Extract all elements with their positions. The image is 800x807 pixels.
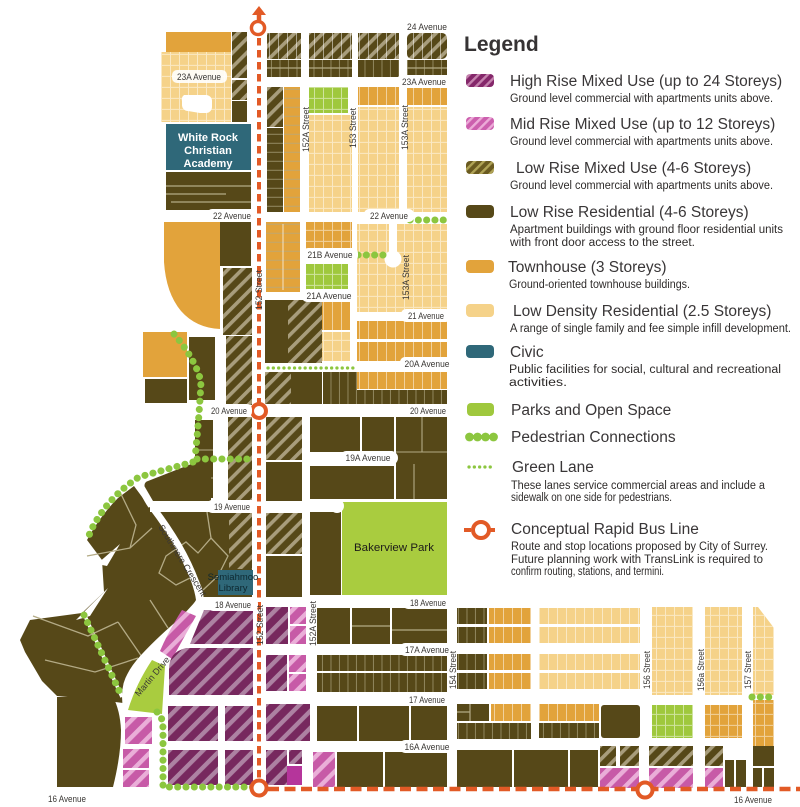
svg-text:152A Street: 152A Street: [308, 601, 318, 646]
svg-text:154 Street: 154 Street: [448, 651, 458, 689]
svg-text:22 Avenue: 22 Avenue: [213, 211, 251, 221]
svg-text:High Rise Mixed Use (up to 24: High Rise Mixed Use (up to 24 Storeys): [510, 73, 782, 90]
svg-text:Ground level commercial with a: Ground level commercial with apartments …: [510, 136, 773, 148]
svg-text:Public facilities for social,: Public facilities for social, cultural a…: [509, 364, 781, 376]
svg-text:153 Street: 153 Street: [348, 108, 358, 148]
svg-text:White Rock: White Rock: [178, 132, 239, 144]
svg-text:156a Street: 156a Street: [696, 649, 706, 691]
svg-text:19 Avenue: 19 Avenue: [214, 502, 250, 512]
svg-text:A range of single family and f: A range of single family and fee simple …: [510, 323, 791, 335]
svg-text:24 Avenue: 24 Avenue: [407, 22, 447, 32]
svg-text:Low Rise Mixed Use (4-6 Storey: Low Rise Mixed Use (4-6 Storeys): [516, 160, 751, 177]
svg-text:Civic: Civic: [510, 344, 544, 361]
svg-text:Christian: Christian: [184, 145, 232, 157]
svg-text:153A Street: 153A Street: [401, 255, 411, 300]
svg-text:152A Street: 152A Street: [301, 107, 311, 152]
svg-text:Ground-oriented townhouse buil: Ground-oriented townhouse buildings.: [509, 279, 690, 291]
svg-text:23A Avenue: 23A Avenue: [177, 72, 221, 82]
svg-text:sidewalk on one side for pedes: sidewalk on one side for pedestrians.: [511, 492, 672, 504]
svg-text:Parks and Open Space: Parks and Open Space: [511, 402, 671, 419]
svg-text:17 Avenue: 17 Avenue: [409, 695, 445, 705]
svg-text:16 Avenue: 16 Avenue: [48, 794, 86, 804]
svg-text:21A Avenue: 21A Avenue: [307, 291, 352, 301]
svg-text:Route and stop locations propo: Route and stop locations proposed by Cit…: [511, 541, 768, 553]
svg-text:Green Lane: Green Lane: [512, 459, 594, 476]
svg-text:19A Avenue: 19A Avenue: [346, 453, 391, 463]
svg-text:Pedestrian Connections: Pedestrian Connections: [511, 429, 676, 446]
svg-text:Conceptual Rapid Bus Line: Conceptual Rapid Bus Line: [511, 521, 699, 538]
svg-text:20 Avenue: 20 Avenue: [211, 406, 247, 416]
svg-text:21 Avenue: 21 Avenue: [408, 311, 444, 321]
svg-text:Apartment buildings with groun: Apartment buildings with ground floor re…: [510, 224, 783, 236]
svg-text:17A Avenue: 17A Avenue: [405, 645, 449, 655]
svg-text:Low Density Residential (2.5 S: Low Density Residential (2.5 Storeys): [513, 303, 771, 320]
svg-text:Ground level commercial with a: Ground level commercial with apartments …: [510, 93, 773, 105]
svg-text:18 Avenue: 18 Avenue: [215, 600, 251, 610]
svg-text:21B Avenue: 21B Avenue: [308, 250, 353, 260]
svg-text:153A Street: 153A Street: [400, 105, 410, 150]
svg-text:Ground level commercial with a: Ground level commercial with apartments …: [510, 180, 773, 192]
svg-text:22 Avenue: 22 Avenue: [370, 211, 408, 221]
svg-text:Townhouse (3 Storeys): Townhouse (3 Storeys): [508, 259, 667, 276]
svg-text:157 Street: 157 Street: [743, 651, 753, 689]
svg-text:156 Street: 156 Street: [642, 651, 652, 689]
svg-text:activities.: activities.: [509, 377, 567, 389]
svg-text:These lanes service commercial: These lanes service commercial areas and…: [511, 480, 766, 492]
svg-text:Low Rise Residential (4-6 Stor: Low Rise Residential (4-6 Storeys): [510, 204, 749, 221]
svg-text:Academy: Academy: [184, 158, 234, 170]
svg-text:Library: Library: [218, 583, 247, 594]
svg-text:with front door access to the: with front door access to the street.: [509, 237, 695, 249]
svg-text:20A Avenue: 20A Avenue: [405, 359, 450, 369]
svg-text:Mid Rise Mixed Use (up to 12 S: Mid Rise Mixed Use (up to 12 Storeys): [510, 116, 775, 133]
svg-text:Semiahmoo: Semiahmoo: [208, 572, 259, 583]
svg-text:confirm routing, stations, and: confirm routing, stations, and termini.: [511, 566, 664, 578]
svg-text:16A Avenue: 16A Avenue: [405, 742, 450, 752]
svg-text:Legend: Legend: [464, 33, 539, 56]
svg-text:152 Street: 152 Street: [254, 270, 264, 310]
svg-text:18 Avenue: 18 Avenue: [410, 598, 446, 608]
svg-text:Bakerview Park: Bakerview Park: [354, 542, 435, 554]
svg-text:152 Street: 152 Street: [255, 605, 265, 645]
svg-text:23A Avenue: 23A Avenue: [402, 77, 446, 87]
svg-text:Future planning work with Tran: Future planning work with TransLink is r…: [511, 554, 763, 566]
svg-text:16 Avenue: 16 Avenue: [734, 795, 772, 805]
svg-text:20 Avenue: 20 Avenue: [410, 406, 446, 416]
